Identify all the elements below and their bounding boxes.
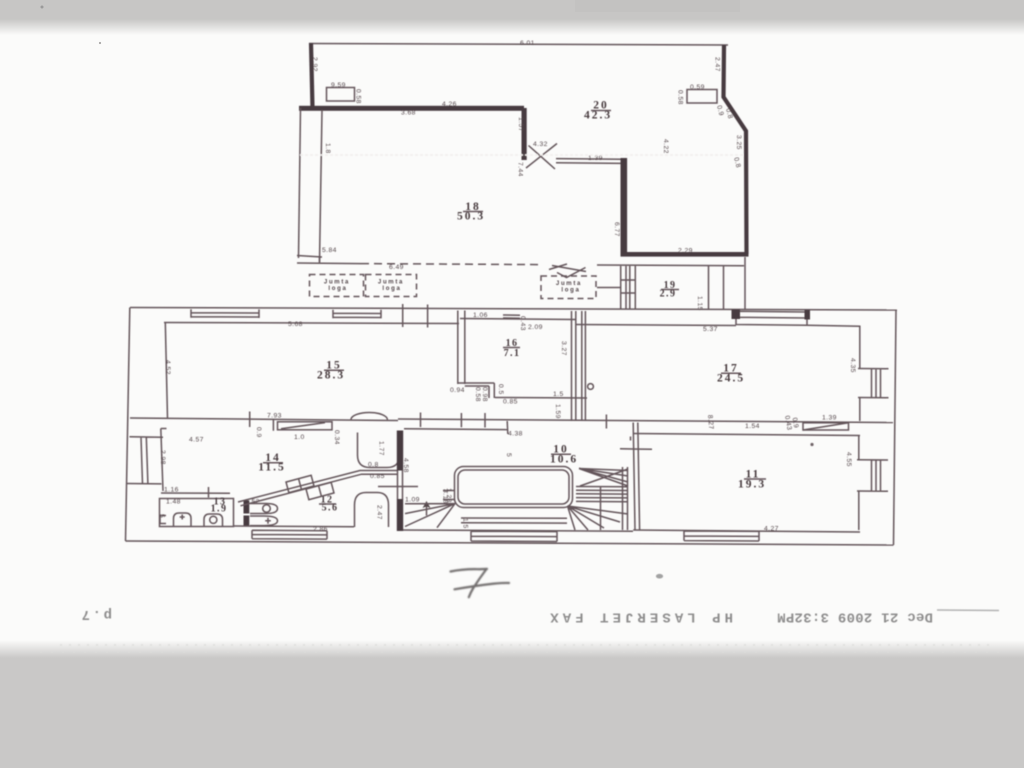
- svg-text:10.6: 10.6: [550, 454, 578, 466]
- svg-text:4.22: 4.22: [662, 139, 669, 154]
- svg-text:8.27: 8.27: [706, 415, 714, 430]
- svg-text:0.34: 0.34: [333, 430, 340, 445]
- svg-text:4.32: 4.32: [533, 141, 548, 148]
- svg-text:Jumta: Jumta: [378, 280, 404, 286]
- svg-text:loga: loga: [328, 286, 347, 292]
- svg-text:1.77: 1.77: [378, 441, 385, 456]
- svg-text:Jumta: Jumta: [324, 280, 350, 286]
- svg-text:loga: loga: [382, 286, 401, 292]
- svg-text:Jumta: Jumta: [556, 281, 582, 287]
- svg-text:loga: loga: [561, 288, 580, 294]
- svg-text:1.5: 1.5: [553, 391, 564, 398]
- svg-text:7.1: 7.1: [504, 348, 521, 359]
- svg-text:1.57: 1.57: [517, 117, 524, 132]
- svg-text:Dec 21 2009 3:32PM: Dec 21 2009 3:32PM: [777, 609, 933, 625]
- svg-text:1.0: 1.0: [294, 434, 305, 441]
- svg-text:2.86: 2.86: [313, 526, 328, 533]
- svg-text:1.09: 1.09: [405, 497, 420, 504]
- svg-text:0.5: 0.5: [497, 384, 504, 395]
- svg-text:3.25: 3.25: [735, 135, 742, 150]
- svg-text:9.59: 9.59: [331, 82, 346, 89]
- svg-text:0.58: 0.58: [355, 89, 362, 104]
- svg-text:5.6: 5.6: [322, 503, 339, 514]
- svg-text:HP LASERJET FAX: HP LASERJET FAX: [546, 609, 733, 625]
- svg-text:50.3: 50.3: [457, 211, 485, 223]
- svg-text:0.43: 0.43: [519, 316, 526, 331]
- svg-text:5: 5: [158, 514, 165, 518]
- svg-text:7.44: 7.44: [517, 162, 524, 177]
- svg-text:1.9: 1.9: [211, 504, 228, 515]
- svg-text:1.39: 1.39: [588, 155, 603, 162]
- svg-text:6.01: 6.01: [520, 40, 535, 47]
- svg-text:0.58: 0.58: [677, 90, 684, 105]
- svg-text:0.94: 0.94: [450, 387, 465, 394]
- svg-text:5.84: 5.84: [322, 247, 337, 254]
- svg-text:4.52: 4.52: [164, 360, 171, 375]
- svg-text:7.93: 7.93: [267, 413, 282, 420]
- svg-text:0.58: 0.58: [474, 387, 481, 402]
- svg-text:42.3: 42.3: [584, 110, 612, 122]
- svg-text:0.98: 0.98: [481, 387, 488, 402]
- svg-text:1.06: 1.06: [473, 312, 488, 319]
- svg-text:4.27: 4.27: [764, 526, 779, 533]
- svg-text:6.77: 6.77: [613, 222, 620, 237]
- svg-text:4.26: 4.26: [442, 101, 457, 108]
- svg-text:0.9: 0.9: [255, 427, 262, 438]
- svg-text:5.37: 5.37: [703, 326, 718, 333]
- svg-text:0.59: 0.59: [690, 84, 705, 91]
- svg-text:0.85: 0.85: [370, 473, 385, 480]
- svg-text:2.9: 2.9: [660, 289, 677, 300]
- svg-text:5: 5: [505, 453, 512, 457]
- svg-text:1.54: 1.54: [745, 423, 760, 430]
- svg-text:19.3: 19.3: [738, 479, 766, 491]
- svg-text:1.28: 1.28: [445, 488, 452, 503]
- svg-text:2.92: 2.92: [311, 57, 318, 72]
- svg-text:2.47: 2.47: [714, 57, 721, 72]
- svg-text:1.59: 1.59: [554, 404, 561, 419]
- svg-text:1.39: 1.39: [822, 415, 837, 422]
- svg-text:4.57: 4.57: [189, 437, 204, 444]
- svg-text:1.8: 1.8: [324, 143, 331, 154]
- svg-text:11.5: 11.5: [258, 462, 286, 474]
- svg-text:4.58: 4.58: [402, 458, 409, 473]
- svg-text:2.09: 2.09: [528, 324, 543, 331]
- svg-text:0.85: 0.85: [503, 399, 518, 406]
- svg-text:2.29: 2.29: [678, 248, 693, 255]
- svg-text:4.55: 4.55: [845, 452, 852, 467]
- svg-text:p.7: p.7: [79, 606, 112, 622]
- svg-text:24.5: 24.5: [717, 373, 745, 385]
- svg-text:4.35: 4.35: [849, 358, 856, 373]
- svg-text:6.49: 6.49: [389, 264, 404, 271]
- svg-text:28.3: 28.3: [317, 370, 345, 382]
- svg-text:5.68: 5.68: [288, 321, 303, 328]
- svg-text:1.48: 1.48: [166, 499, 181, 506]
- svg-text:4.38: 4.38: [508, 431, 523, 438]
- svg-text:3.68: 3.68: [401, 110, 416, 117]
- svg-text:1.5: 1.5: [462, 518, 469, 529]
- svg-text:3.27: 3.27: [560, 341, 567, 356]
- svg-text:2.98: 2.98: [159, 450, 166, 465]
- svg-text:2.47: 2.47: [376, 505, 383, 520]
- svg-text:0.8: 0.8: [368, 462, 379, 469]
